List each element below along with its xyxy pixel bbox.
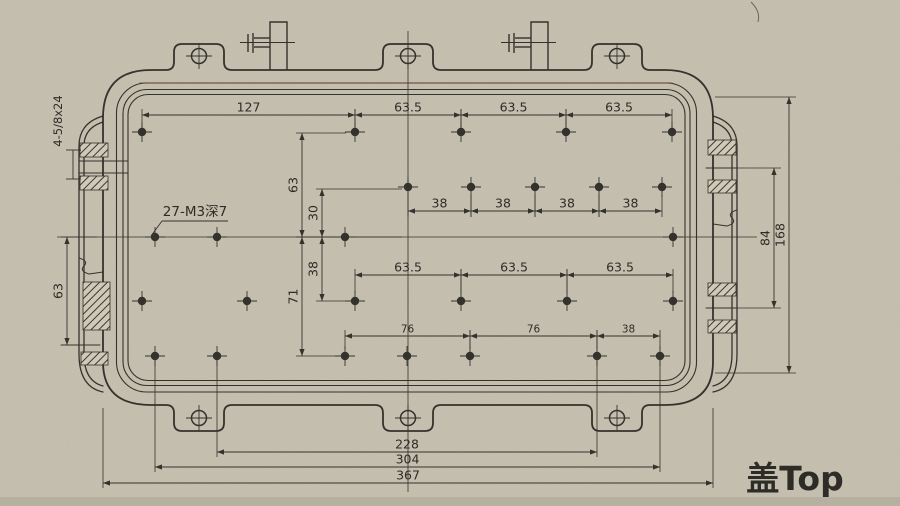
drawing-title: 盖Top: [746, 459, 843, 498]
dimension-label: 63.5: [606, 260, 634, 275]
dimension-label: 63: [286, 177, 301, 193]
dimension-label: 38: [622, 324, 635, 336]
dimension-label: 76: [401, 324, 415, 336]
engineering-drawing-page: 27-M3深7 4-5/8x24 12763.563.563.538383838…: [0, 0, 900, 506]
dimension-label: 38: [495, 196, 511, 211]
dimension-label: 71: [286, 289, 301, 305]
dimension-label: 38: [559, 196, 575, 211]
dimension-label: 63.5: [500, 100, 528, 115]
hatch-block: [80, 176, 108, 190]
dimension-label: 30: [306, 205, 321, 221]
dimension-label: 63: [51, 283, 66, 299]
hatch-block: [83, 282, 110, 330]
paper-bottom-shade: [0, 497, 900, 506]
dimension-label: 84: [758, 230, 773, 246]
dimension-label: 63.5: [500, 260, 528, 275]
hatch-block: [708, 320, 736, 333]
slot-note-label: 4-5/8x24: [51, 95, 65, 146]
dimension-label: 228: [395, 437, 419, 452]
dimension-label: 367: [396, 468, 420, 483]
dimension-label: 304: [396, 452, 420, 467]
dimension-label: 63.5: [605, 100, 633, 115]
hatch-block: [708, 283, 736, 296]
hatch-block: [708, 140, 736, 155]
dimension-label: 63.5: [394, 100, 422, 115]
dimension-label: 63.5: [394, 260, 422, 275]
paper-grain: [0, 0, 900, 506]
dimension-label: 38: [623, 196, 639, 211]
dimension-label: 38: [432, 196, 448, 211]
cover-top-view-drawing: 27-M3深7 4-5/8x24 12763.563.563.538383838…: [0, 0, 900, 506]
hatch-block: [81, 352, 108, 365]
dimension-label: 38: [306, 261, 321, 277]
dimension-label: 127: [237, 100, 261, 115]
hatch-block: [80, 143, 108, 157]
dimension-label: 76: [527, 324, 541, 336]
dimension-label: 168: [773, 223, 788, 247]
hatch-block: [708, 180, 736, 193]
thread-note-label: 27-M3深7: [163, 204, 227, 220]
